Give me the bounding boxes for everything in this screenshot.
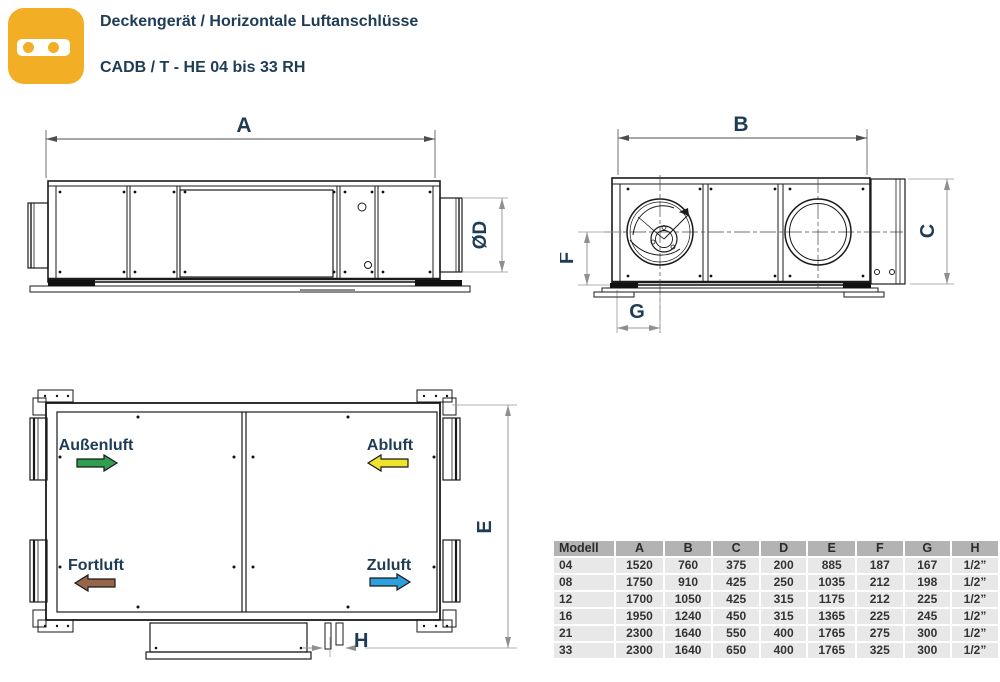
table-cell: 275 bbox=[857, 626, 902, 641]
table-cell: 325 bbox=[857, 643, 902, 658]
table-cell: 200 bbox=[761, 558, 806, 573]
unit-side-body bbox=[48, 181, 440, 282]
unit-end-body bbox=[612, 178, 870, 285]
table-cell: 400 bbox=[761, 643, 806, 658]
datasheet-page: Deckengerät / Horizontale Luftanschlüsse… bbox=[0, 0, 1000, 682]
table-cell: 245 bbox=[905, 609, 950, 624]
top-view-diagram: Außenluft Abluft Fortluft Zuluft E bbox=[20, 385, 520, 682]
column-header: G bbox=[905, 541, 950, 556]
table-cell: 212 bbox=[857, 575, 902, 590]
table-cell: 760 bbox=[665, 558, 712, 573]
table-cell: 1765 bbox=[808, 643, 855, 658]
left-duct-spigot bbox=[28, 203, 48, 268]
table-cell: 225 bbox=[905, 592, 950, 607]
dim-label-b: B bbox=[733, 113, 748, 136]
table-cell: 400 bbox=[761, 626, 806, 641]
dimension-a: A bbox=[46, 114, 435, 178]
table-cell: 2300 bbox=[616, 626, 663, 641]
access-panel bbox=[180, 190, 333, 277]
table-row: 08175091042525010352121981/2” bbox=[554, 575, 998, 590]
table-cell: 300 bbox=[905, 626, 950, 641]
table-cell: 1/2” bbox=[952, 643, 998, 658]
column-header: H bbox=[952, 541, 998, 556]
column-header: C bbox=[713, 541, 758, 556]
model-range-subtitle: CADB / T - HE 04 bis 33 RH bbox=[100, 59, 305, 77]
table-cell: 04 bbox=[554, 558, 614, 573]
electrical-box bbox=[871, 179, 905, 284]
zuluft-label: Zuluft bbox=[367, 557, 412, 574]
table-cell: 1640 bbox=[665, 626, 712, 641]
table-cell: 1950 bbox=[616, 609, 663, 624]
table-cell: 1175 bbox=[808, 592, 855, 607]
end-view-diagram: B bbox=[560, 105, 1000, 340]
table-cell: 198 bbox=[905, 575, 950, 590]
table-cell: 33 bbox=[554, 643, 614, 658]
dimension-c: C bbox=[908, 179, 954, 284]
table-cell: 1240 bbox=[665, 609, 712, 624]
table-cell: 12 bbox=[554, 592, 614, 607]
table-cell: 1035 bbox=[808, 575, 855, 590]
side-view-diagram: A bbox=[20, 105, 520, 305]
dimension-table-header: ModellABCDEFGH bbox=[554, 541, 998, 556]
table-row: 0415207603752008851871671/2” bbox=[554, 558, 998, 573]
table-cell: 1/2” bbox=[952, 592, 998, 607]
icon-dot-left bbox=[23, 42, 34, 53]
fortluft-arrow-icon bbox=[75, 575, 115, 591]
dimension-d: ØD bbox=[462, 198, 508, 272]
table-cell: 1640 bbox=[665, 643, 712, 658]
table-cell: 1750 bbox=[616, 575, 663, 590]
dim-label-e: E bbox=[474, 520, 496, 533]
table-cell: 375 bbox=[713, 558, 758, 573]
table-cell: 1365 bbox=[808, 609, 855, 624]
table-cell: 300 bbox=[905, 643, 950, 658]
table-cell: 550 bbox=[713, 626, 758, 641]
dimension-g: G bbox=[617, 290, 660, 333]
dim-label-f: F bbox=[560, 252, 578, 264]
column-header: E bbox=[808, 541, 855, 556]
table-cell: 650 bbox=[713, 643, 758, 658]
table-cell: 1520 bbox=[616, 558, 663, 573]
table-cell: 1050 bbox=[665, 592, 712, 607]
dimension-b: B bbox=[618, 113, 867, 175]
right-duct-spigot bbox=[440, 198, 462, 272]
table-cell: 187 bbox=[857, 558, 902, 573]
table-cell: 910 bbox=[665, 575, 712, 590]
right-duct-connections bbox=[443, 418, 460, 602]
table-row: 121700105042531511752122251/2” bbox=[554, 592, 998, 607]
table-cell: 08 bbox=[554, 575, 614, 590]
table-cell: 167 bbox=[905, 558, 950, 573]
spec-table-body: 0415207603752008851871671/2”081750910425… bbox=[554, 558, 998, 658]
column-header: F bbox=[857, 541, 902, 556]
aussenluft-label: Außenluft bbox=[59, 437, 134, 454]
column-header: Modell bbox=[554, 541, 614, 556]
table-row: 212300164055040017652753001/2” bbox=[554, 626, 998, 641]
page-title: Deckengerät / Horizontale Luftanschlüsse bbox=[100, 13, 418, 31]
header-row: ModellABCDEFGH bbox=[554, 541, 998, 556]
table-cell: 1/2” bbox=[952, 558, 998, 573]
icon-dot-right bbox=[48, 42, 59, 53]
column-header: D bbox=[761, 541, 806, 556]
table-cell: 425 bbox=[713, 592, 758, 607]
table-cell: 21 bbox=[554, 626, 614, 641]
zuluft-arrow-icon bbox=[370, 574, 410, 590]
table-cell: 225 bbox=[857, 609, 902, 624]
abluft-label: Abluft bbox=[367, 437, 414, 454]
table-cell: 885 bbox=[808, 558, 855, 573]
column-header: B bbox=[665, 541, 712, 556]
fortluft-label: Fortluft bbox=[68, 557, 125, 574]
dim-label-c: C bbox=[917, 224, 939, 238]
dim-label-a: A bbox=[236, 114, 251, 137]
table-row: 332300164065040017653253001/2” bbox=[554, 643, 998, 658]
table-cell: 250 bbox=[761, 575, 806, 590]
corner-brackets bbox=[33, 390, 456, 632]
column-header: A bbox=[616, 541, 663, 556]
table-row: 161950124045031513652252451/2” bbox=[554, 609, 998, 624]
dimension-table: ModellABCDEFGH 0415207603752008851871671… bbox=[552, 539, 1000, 660]
table-cell: 450 bbox=[713, 609, 758, 624]
dim-label-h: H bbox=[354, 630, 368, 652]
table-cell: 212 bbox=[857, 592, 902, 607]
table-cell: 1/2” bbox=[952, 609, 998, 624]
table-cell: 1/2” bbox=[952, 575, 998, 590]
table-cell: 1700 bbox=[616, 592, 663, 607]
table-cell: 315 bbox=[761, 592, 806, 607]
drain-tray bbox=[146, 623, 311, 659]
table-cell: 315 bbox=[761, 609, 806, 624]
abluft-arrow-icon bbox=[368, 455, 408, 471]
dim-label-g: G bbox=[629, 301, 645, 323]
product-series-icon bbox=[8, 8, 84, 84]
table-cell: 425 bbox=[713, 575, 758, 590]
aussenluft-arrow-icon bbox=[77, 455, 117, 471]
left-duct-connections bbox=[30, 418, 47, 602]
dim-label-od: ØD bbox=[470, 221, 491, 250]
table-cell: 1765 bbox=[808, 626, 855, 641]
drain-pipes bbox=[325, 623, 343, 649]
table-cell: 2300 bbox=[616, 643, 663, 658]
table-cell: 1/2” bbox=[952, 626, 998, 641]
table-cell: 16 bbox=[554, 609, 614, 624]
